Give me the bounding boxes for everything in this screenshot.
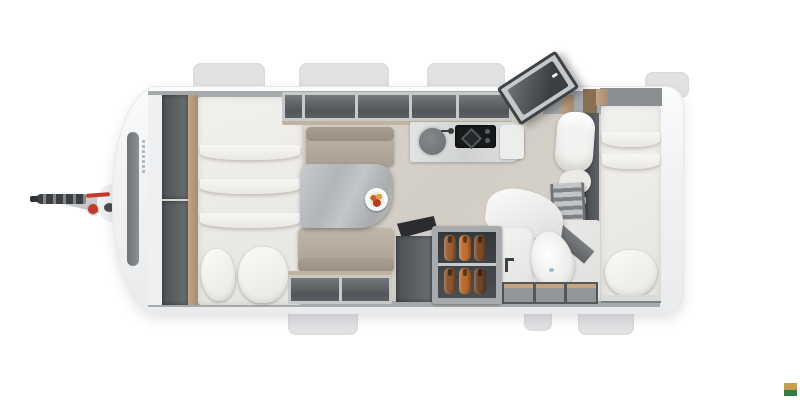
bottle bbox=[459, 235, 471, 261]
rear-bed-foot-rail bbox=[601, 295, 661, 303]
bunk-rolled-duvet bbox=[554, 111, 596, 174]
hitch-coupler bbox=[36, 194, 86, 204]
bottle bbox=[444, 268, 456, 294]
watermark-bottom bbox=[784, 390, 797, 396]
brand-text bbox=[142, 140, 145, 174]
wardrobe-column-bottom bbox=[162, 201, 188, 305]
bathroom-drawers bbox=[502, 282, 598, 304]
locker bbox=[291, 278, 339, 301]
watermark-badge bbox=[784, 383, 797, 396]
hob bbox=[455, 125, 496, 148]
dinette-bench-bottom bbox=[298, 228, 394, 272]
duvet-fold bbox=[200, 213, 300, 228]
bench-backrest bbox=[306, 127, 394, 141]
bottle bbox=[474, 268, 486, 294]
tap-base bbox=[448, 128, 454, 134]
duvet-fold bbox=[200, 145, 300, 160]
bed-wood-trim bbox=[188, 95, 198, 305]
rear-shelf-wood bbox=[596, 89, 608, 105]
door-threshold bbox=[583, 89, 597, 113]
bath-tap-spout bbox=[505, 258, 514, 261]
hitch-coupler-tip bbox=[30, 196, 38, 202]
bath-vanity bbox=[500, 226, 534, 288]
locker bbox=[459, 95, 509, 118]
drawer bbox=[536, 284, 565, 302]
fridge bbox=[432, 226, 502, 304]
front-inner-wall bbox=[148, 95, 162, 305]
watermark-top bbox=[784, 383, 797, 390]
locker bbox=[305, 95, 355, 118]
drawer bbox=[567, 284, 596, 302]
bench-backrest bbox=[298, 258, 394, 272]
hitch-jockey-knob bbox=[88, 204, 98, 214]
bottle bbox=[459, 268, 471, 294]
locker bbox=[412, 95, 456, 118]
duvet-fold bbox=[602, 132, 660, 147]
hob-knob bbox=[485, 138, 490, 143]
worktop-extension bbox=[500, 125, 524, 159]
overhead-lockers-top bbox=[282, 92, 512, 125]
bottle bbox=[444, 235, 456, 261]
overhead-lockers-bottom bbox=[288, 271, 392, 304]
burner bbox=[461, 128, 482, 149]
hob-knob bbox=[485, 129, 490, 134]
plate bbox=[365, 188, 388, 211]
locker bbox=[285, 95, 302, 118]
toilet-flush-button bbox=[549, 268, 554, 272]
fridge-shelf bbox=[438, 263, 496, 266]
duvet-fold bbox=[200, 179, 300, 194]
bottle bbox=[474, 235, 486, 261]
food bbox=[369, 192, 384, 207]
rear-shelf bbox=[600, 88, 662, 106]
duvet-fold bbox=[602, 154, 660, 169]
dinette-bench-top bbox=[306, 127, 394, 167]
floorplan-canvas bbox=[0, 0, 800, 400]
front-window bbox=[127, 132, 139, 266]
locker bbox=[358, 95, 410, 118]
base-cabinet bbox=[396, 236, 432, 302]
locker bbox=[342, 278, 390, 301]
drawer bbox=[504, 284, 533, 302]
wardrobe-column-top bbox=[162, 95, 188, 199]
